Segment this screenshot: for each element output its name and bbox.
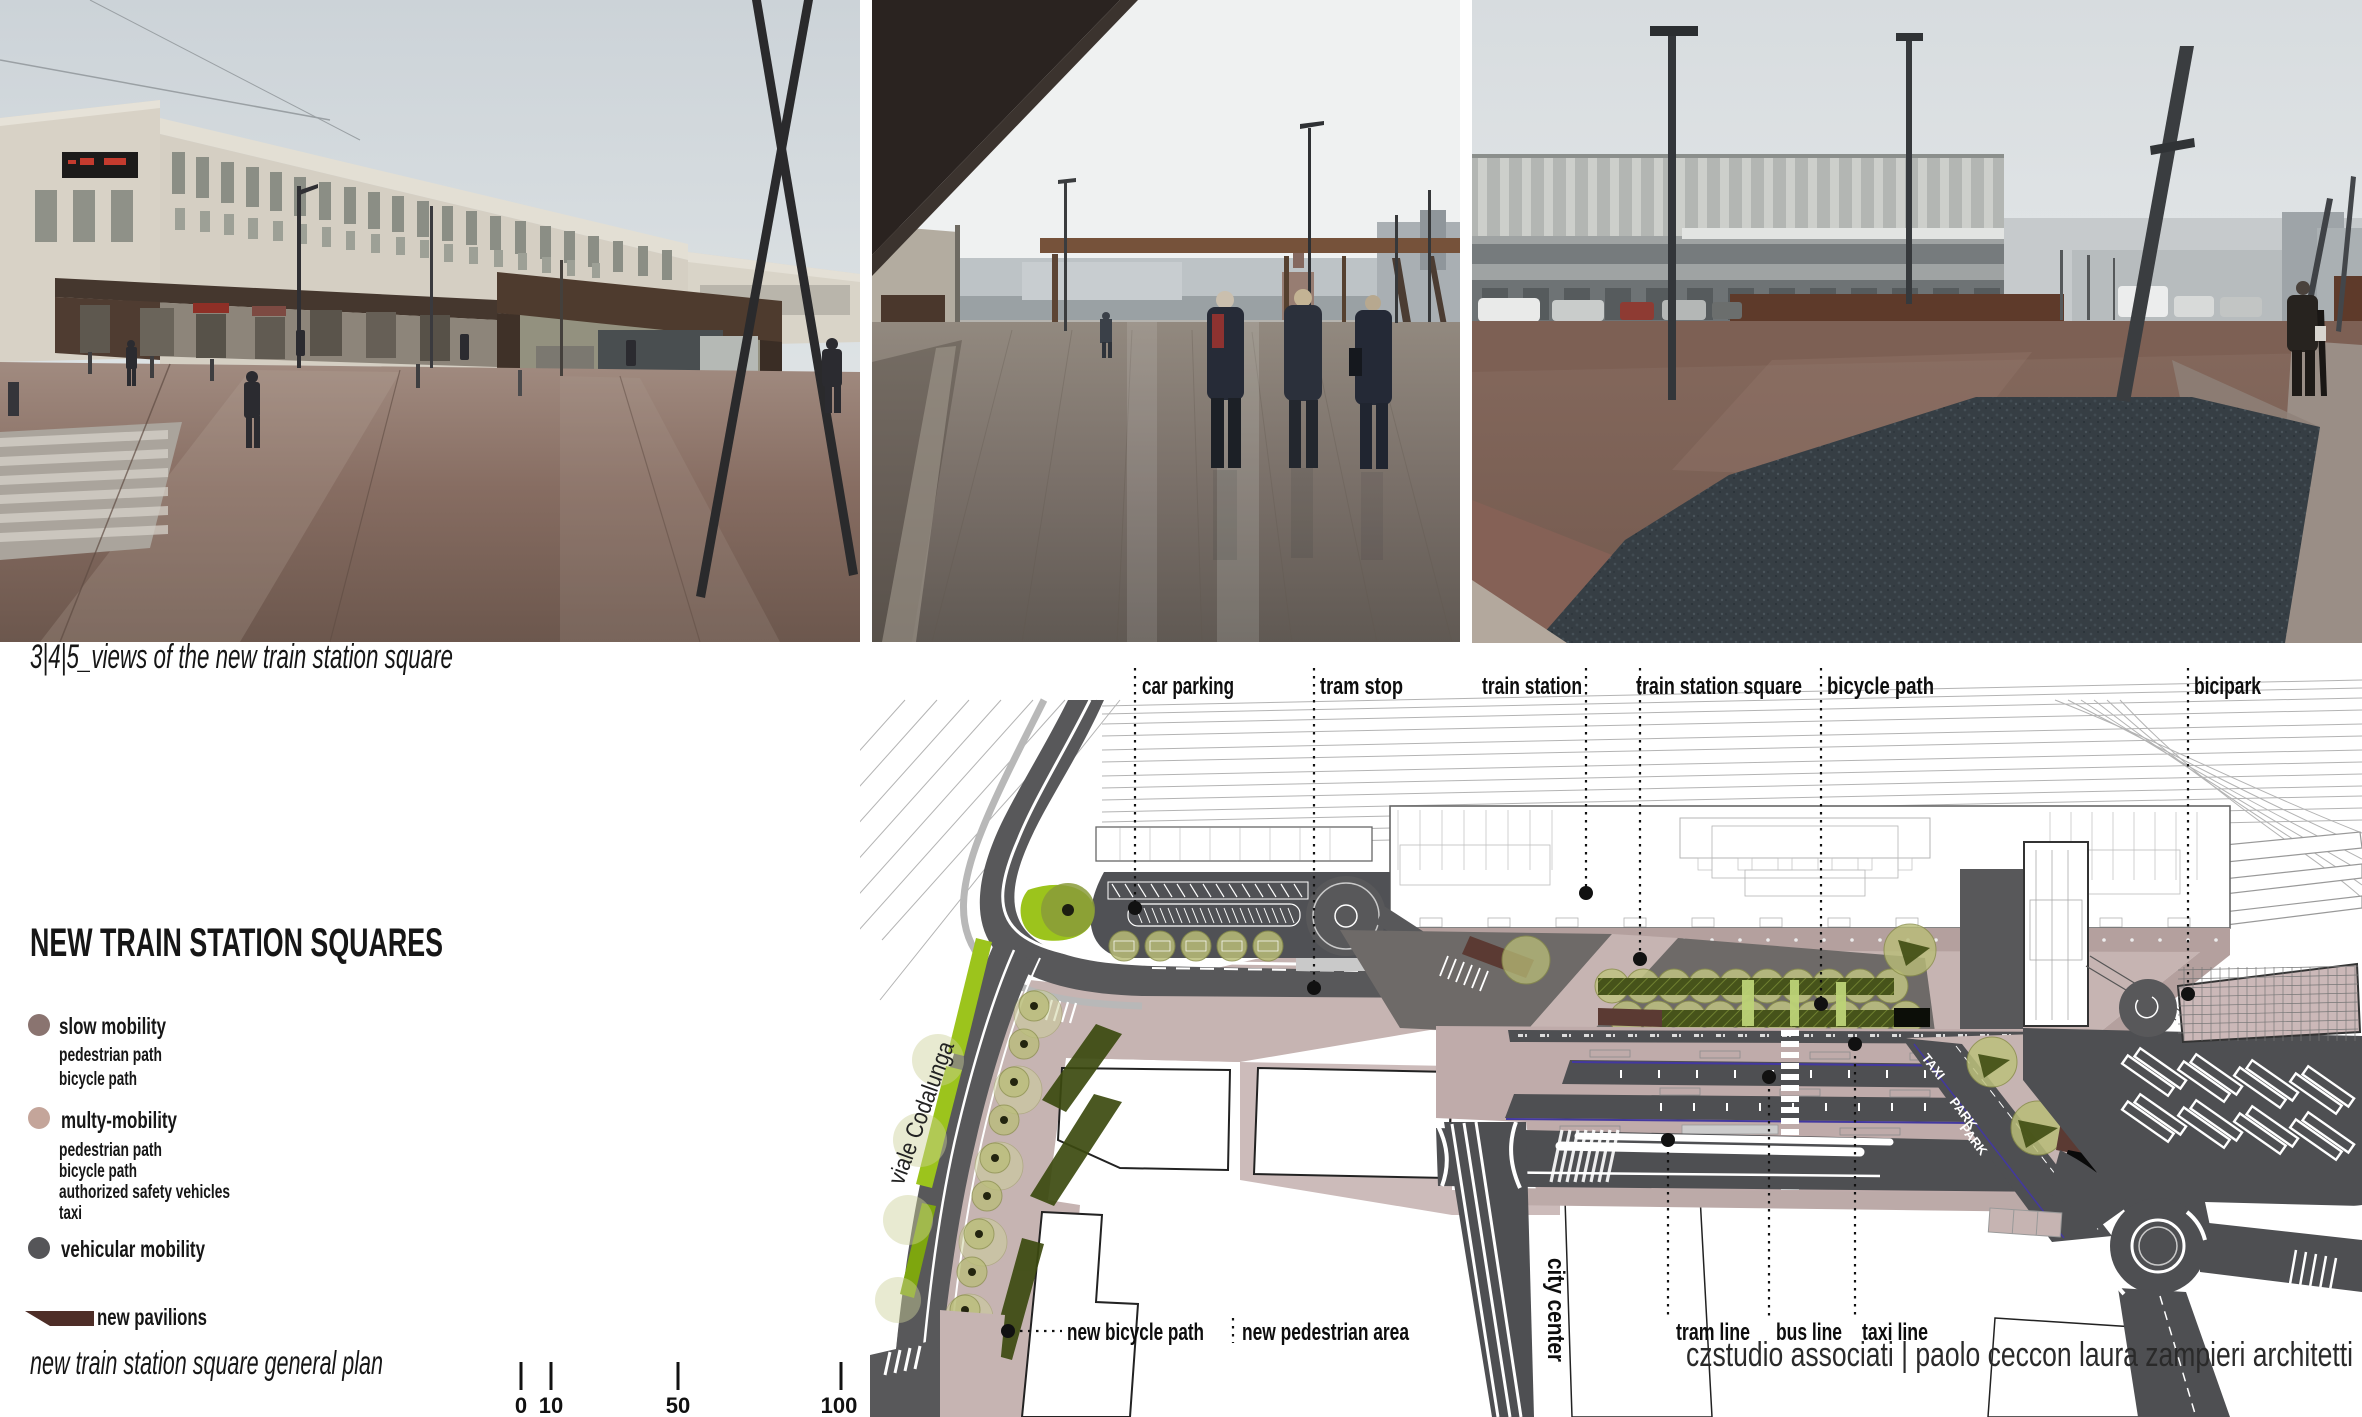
svg-text:vehicular mobility: vehicular mobility [61, 1236, 205, 1262]
svg-text:czstudio associati | paolo cec: czstudio associati | paolo ceccon laura … [1686, 1336, 2353, 1374]
svg-text:50: 50 [666, 1393, 690, 1417]
svg-text:multy-mobility: multy-mobility [61, 1107, 177, 1133]
svg-text:bicycle path: bicycle path [59, 1069, 137, 1090]
svg-text:NEW TRAIN STATION SQUARES: NEW TRAIN STATION SQUARES [30, 921, 443, 965]
svg-text:train station square: train station square [1636, 673, 1802, 700]
svg-text:authorized safety vehicles: authorized safety vehicles [59, 1182, 230, 1203]
svg-text:bicycle path: bicycle path [1827, 673, 1934, 700]
svg-text:10: 10 [539, 1393, 563, 1417]
svg-text:3|4|5_views of the new train s: 3|4|5_views of the new train station squ… [30, 638, 453, 676]
svg-text:100: 100 [821, 1393, 858, 1417]
svg-text:train station: train station [1482, 673, 1582, 700]
svg-text:tram stop: tram stop [1320, 673, 1403, 700]
svg-text:bicycle path: bicycle path [59, 1161, 137, 1182]
svg-text:pedestrian path: pedestrian path [59, 1045, 162, 1066]
svg-text:slow mobility: slow mobility [59, 1013, 166, 1039]
svg-text:car parking: car parking [1142, 673, 1234, 700]
svg-text:new train station square gener: new train station square general plan [30, 1344, 383, 1381]
svg-text:new pedestrian area: new pedestrian area [1242, 1319, 1409, 1346]
svg-text:new pavilions: new pavilions [97, 1304, 207, 1330]
svg-text:taxi: taxi [59, 1203, 82, 1224]
svg-text:city center: city center [1542, 1258, 1569, 1362]
svg-text:bicipark: bicipark [2194, 673, 2261, 700]
svg-text:new bicycle path: new bicycle path [1067, 1319, 1204, 1346]
svg-text:0: 0 [515, 1393, 527, 1417]
svg-text:pedestrian path: pedestrian path [59, 1140, 162, 1161]
